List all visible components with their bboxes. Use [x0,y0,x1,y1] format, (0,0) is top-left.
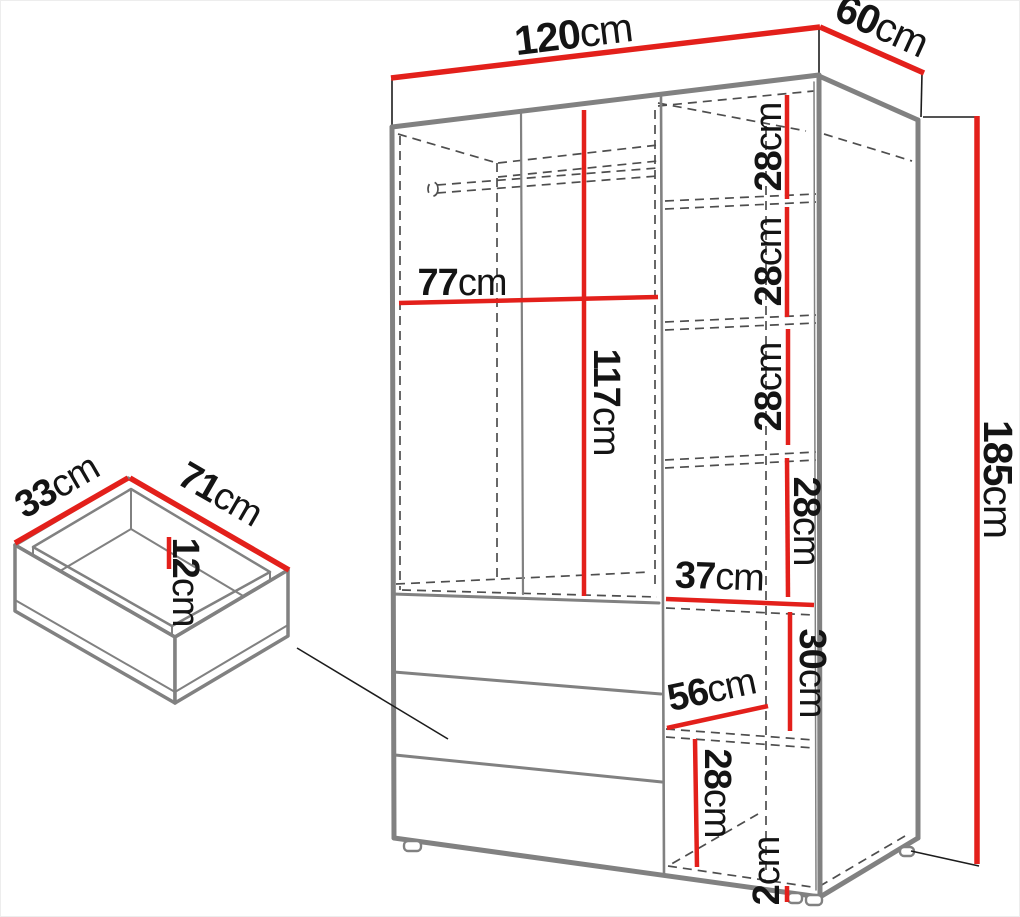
dim-label-shelf-28-2: 28cm [748,218,790,307]
front-left-edge [392,127,394,838]
dim-label-drawer-depth: 33cm [8,446,106,527]
wardrobe-outline [392,28,922,905]
dimension-extension-lines [911,117,979,866]
door-split-line [521,112,523,594]
dim-label-width: 120cm [512,4,635,64]
dim-label-height: 185cm [975,420,1020,538]
dim-label-base-2: 2cm [746,837,788,906]
dim-label-shelf-28-3: 28cm [748,343,790,432]
dim-label-interior-width: 77cm [418,262,507,304]
drawer-fronts [393,594,662,782]
drawer-callout-line [297,648,448,739]
dim-line-column-width-37 [666,599,814,605]
dimension-labels: 120cm 60cm 185cm 77cm 117cm 28cm 28cm 28… [8,0,1020,905]
dim-label-bottom-28: 28cm [696,749,738,838]
dim-label-interior-height: 117cm [585,349,627,456]
dim-label-column-width: 37cm [674,554,764,599]
dim-label-compartment-30: 30cm [791,629,833,718]
diagram-canvas: 120cm 60cm 185cm 77cm 117cm 28cm 28cm 28… [0,0,1020,917]
dim-label-shelf-28-4: 28cm [785,477,827,566]
wardrobe-dimension-diagram: 120cm 60cm 185cm 77cm 117cm 28cm 28cm 28… [0,0,1020,917]
wardrobe-hidden-edges [396,91,912,887]
center-partition [661,96,664,874]
dimension-lines [15,27,977,902]
dim-label-drawer-height: 12cm [164,538,206,627]
side-top-edge [819,76,918,120]
top-slab-back-corner-edge [921,73,922,117]
dim-label-shelf-28-1: 28cm [748,103,790,192]
